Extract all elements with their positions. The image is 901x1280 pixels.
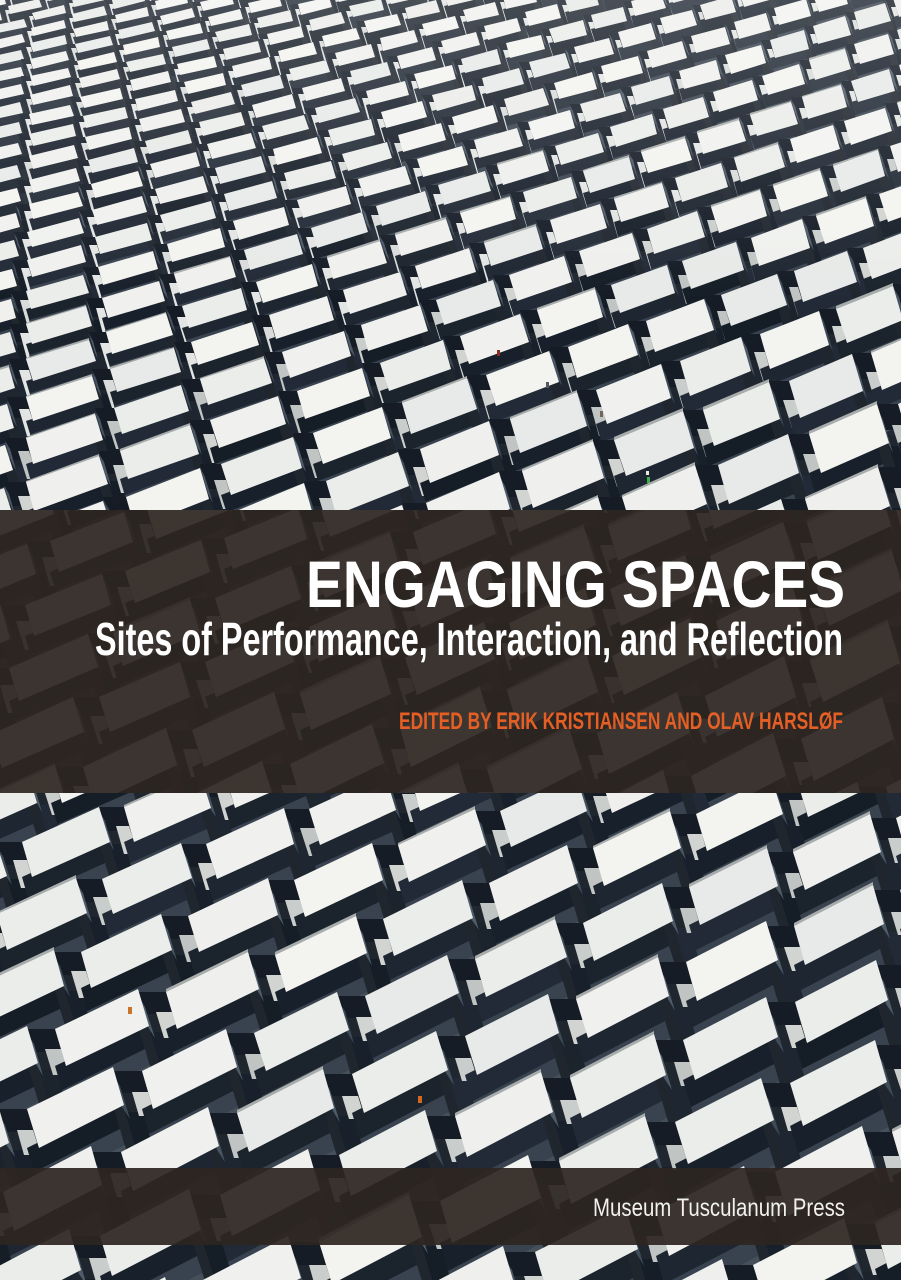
svg-text:Sites of Performance, Interact: Sites of Performance, Interaction, and R…: [95, 613, 843, 665]
svg-text:ENGAGING SPACES: ENGAGING SPACES: [306, 547, 845, 621]
svg-text:Museum Tusculanum Press: Museum Tusculanum Press: [593, 1194, 845, 1222]
svg-text:EDITED BY ERIK KRISTIANSEN AND: EDITED BY ERIK KRISTIANSEN AND OLAV HARS…: [399, 708, 843, 735]
